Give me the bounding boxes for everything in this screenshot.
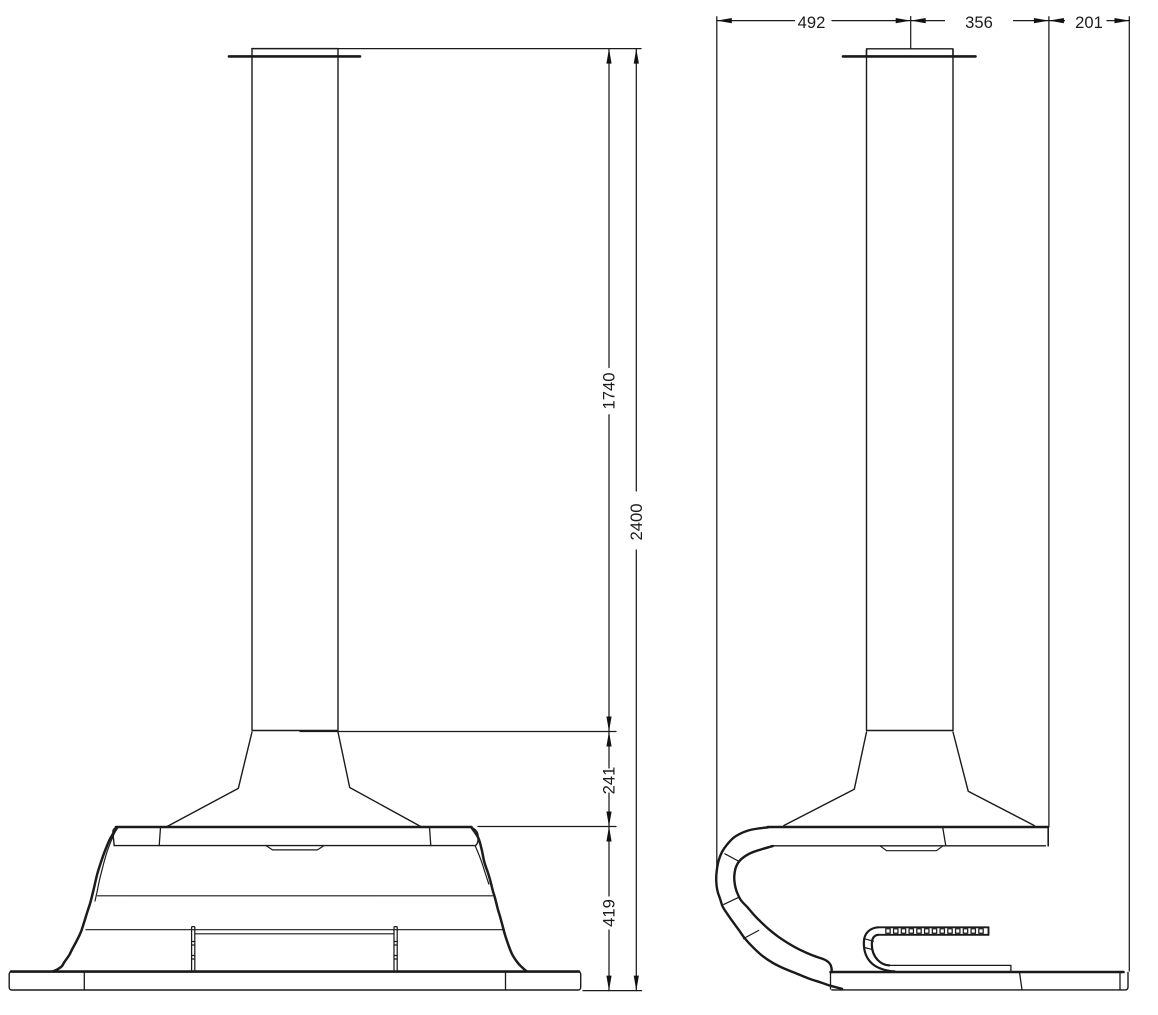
svg-text:201: 201 <box>1075 13 1103 32</box>
svg-text:492: 492 <box>798 13 826 32</box>
svg-text:241: 241 <box>600 767 619 795</box>
svg-text:1740: 1740 <box>600 373 619 410</box>
svg-text:419: 419 <box>600 899 619 927</box>
svg-text:356: 356 <box>965 13 993 32</box>
svg-text:2400: 2400 <box>627 504 646 541</box>
